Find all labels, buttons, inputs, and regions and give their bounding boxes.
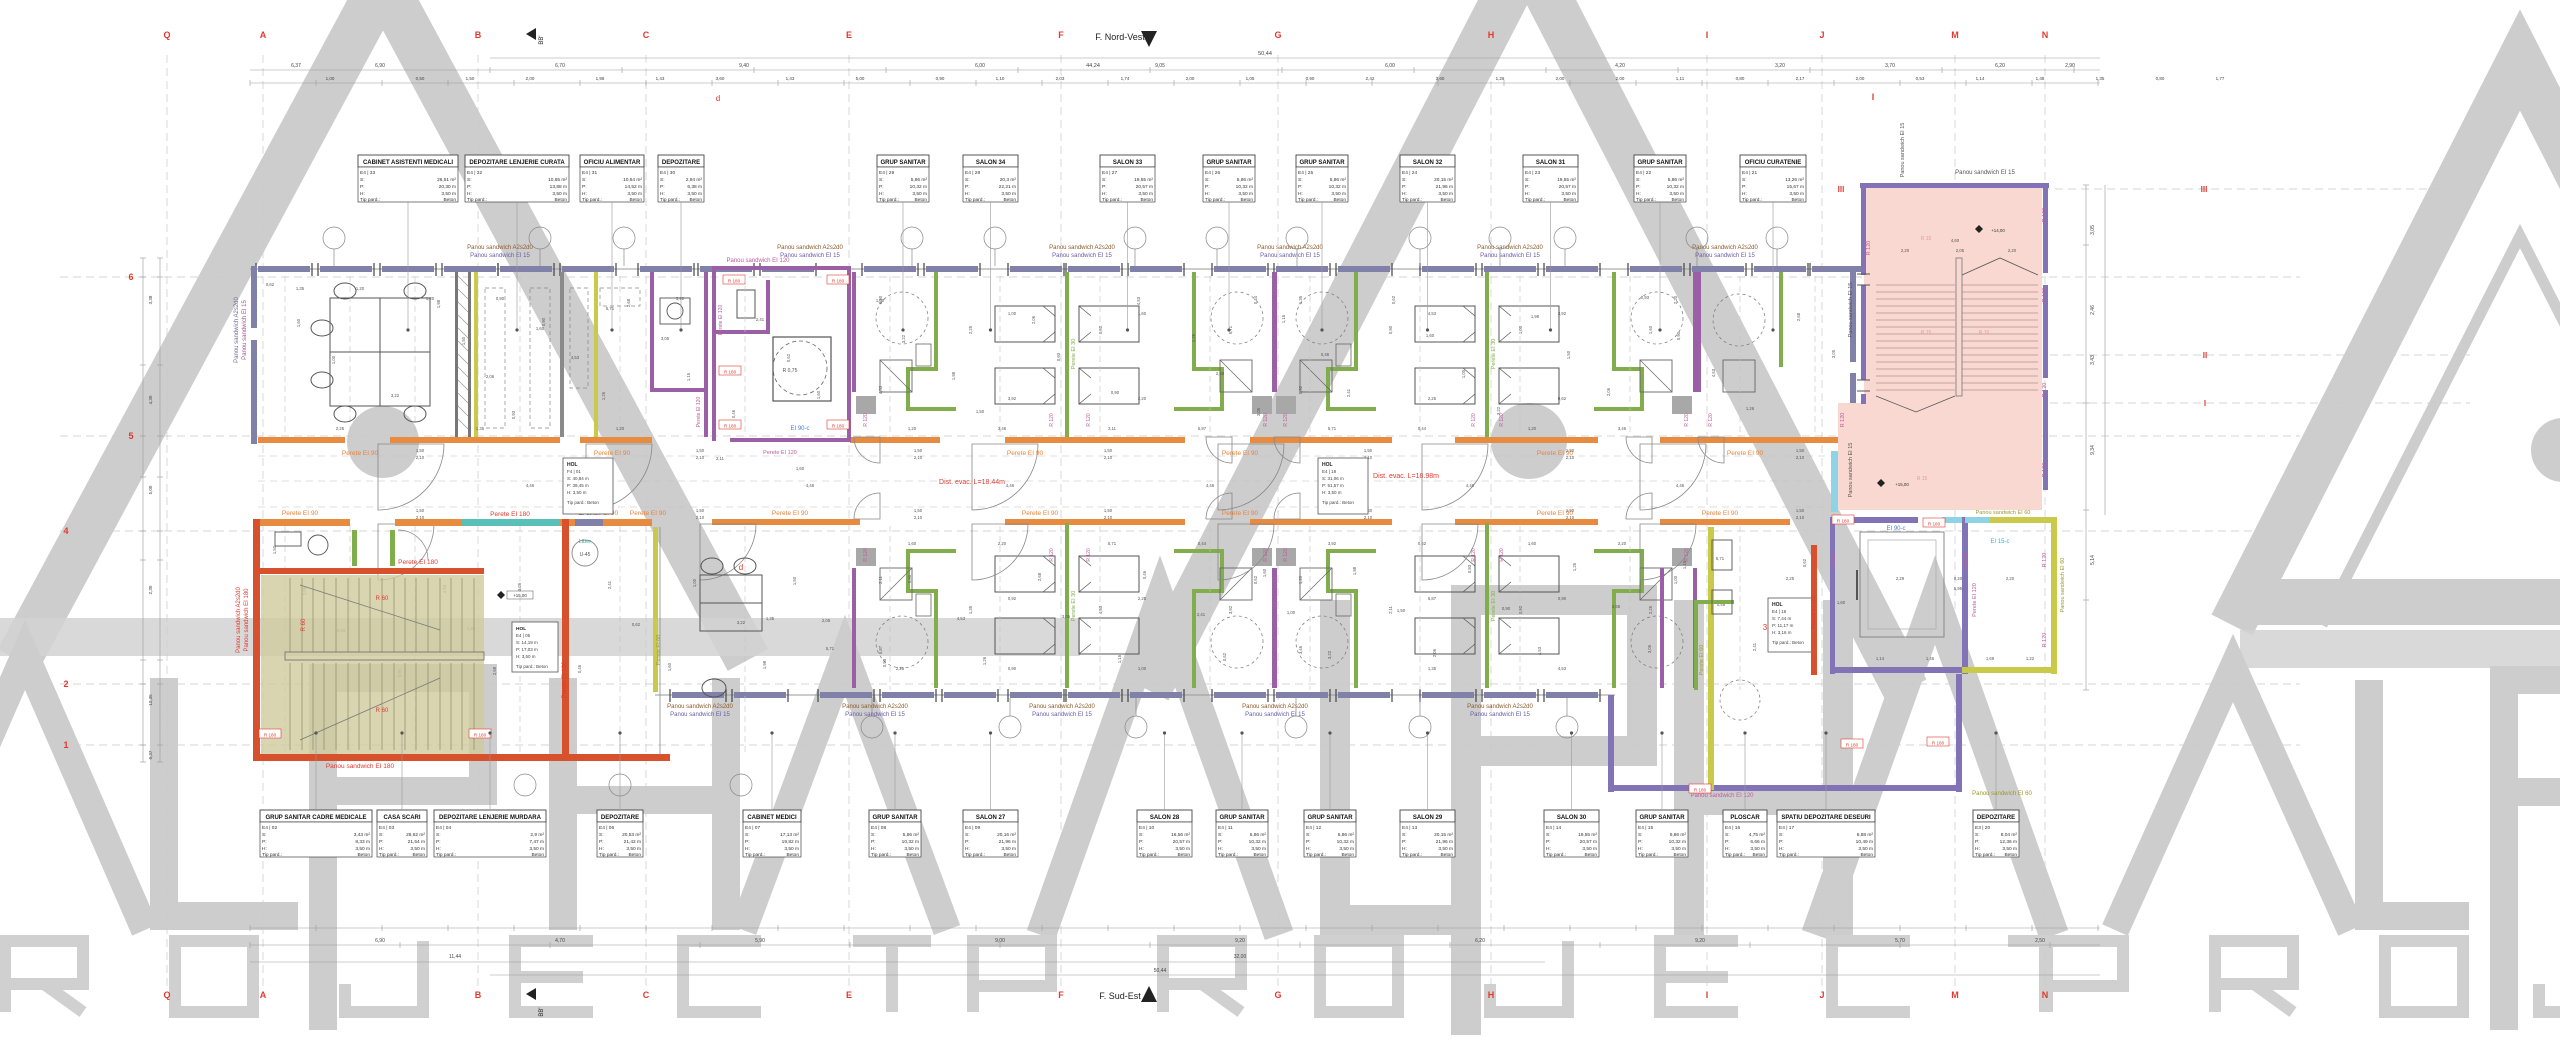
- svg-text:H:: H:: [599, 846, 604, 852]
- svg-text:S:: S:: [965, 832, 970, 838]
- svg-text:4,46: 4,46: [1206, 483, 1215, 488]
- svg-text:3,50 m: 3,50 m: [1339, 846, 1354, 852]
- svg-text:1,00: 1,00: [876, 298, 885, 303]
- svg-text:I: I: [2204, 399, 2206, 408]
- svg-text:0,90: 0,90: [496, 296, 505, 301]
- svg-text:E4 | 09: E4 | 09: [965, 825, 980, 831]
- svg-text:3,50 m: 3,50 m: [912, 191, 927, 197]
- svg-text:R 180: R 180: [474, 733, 487, 738]
- svg-text:H:: H:: [1975, 846, 1980, 852]
- svg-text:H: 3,50 m: H: 3,50 m: [516, 654, 536, 659]
- svg-text:HOL: HOL: [516, 626, 526, 632]
- svg-text:2: 2: [63, 679, 68, 689]
- svg-text:E4 | 23: E4 | 23: [1525, 170, 1540, 176]
- svg-text:G: G: [1274, 30, 1281, 40]
- svg-text:10,65 m²: 10,65 m²: [548, 177, 567, 183]
- svg-text:3,46: 3,46: [998, 426, 1007, 431]
- svg-text:R 120: R 120: [1049, 548, 1055, 562]
- svg-text:0,90: 0,90: [1008, 666, 1017, 671]
- svg-text:Panou sandwich EI 15: Panou sandwich EI 15: [1470, 712, 1530, 718]
- svg-text:P:: P:: [599, 839, 604, 845]
- svg-text:6,88 m²: 6,88 m²: [1857, 832, 1874, 838]
- svg-text:R 180: R 180: [724, 424, 737, 429]
- svg-text:21,96 m: 21,96 m: [1436, 839, 1453, 845]
- svg-text:H:: H:: [582, 191, 587, 197]
- svg-text:4,70: 4,70: [555, 938, 565, 944]
- svg-text:1,43: 1,43: [786, 76, 795, 81]
- svg-text:E4 | 14: E4 | 14: [1546, 825, 1561, 831]
- svg-text:4,53: 4,53: [1098, 605, 1103, 614]
- svg-text:4,53: 4,53: [1558, 666, 1567, 671]
- svg-text:Tip pard.:: Tip pard.:: [262, 852, 282, 858]
- svg-text:9,00: 9,00: [995, 938, 1005, 944]
- svg-text:DEPOZITARE: DEPOZITARE: [1977, 815, 2015, 821]
- svg-text:Perete EI 30: Perete EI 30: [1491, 591, 1497, 622]
- svg-text:1,50: 1,50: [1104, 508, 1113, 513]
- svg-text:R 60: R 60: [376, 708, 389, 714]
- svg-text:S:: S:: [965, 177, 970, 183]
- svg-text:11,44: 11,44: [449, 954, 461, 960]
- svg-text:Beton: Beton: [1177, 852, 1190, 858]
- svg-text:BB': BB': [539, 1007, 545, 1016]
- svg-text:2,68: 2,68: [1216, 371, 1225, 376]
- svg-text:Beton: Beton: [906, 852, 919, 858]
- svg-text:3,50 m: 3,50 m: [1001, 191, 1016, 197]
- svg-text:Panou sandwich EI 180: Panou sandwich EI 180: [326, 763, 395, 770]
- svg-text:P:: P:: [262, 839, 267, 845]
- svg-text:1,00: 1,00: [1461, 369, 1466, 378]
- svg-text:H:: H:: [745, 846, 750, 852]
- svg-text:0,46: 0,46: [1142, 570, 1147, 579]
- svg-text:EI 15-c: EI 15-c: [1990, 539, 2009, 545]
- svg-text:1,14: 1,14: [1876, 656, 1885, 661]
- svg-text:GRUP SANITAR: GRUP SANITAR: [1206, 160, 1252, 166]
- svg-text:1,60: 1,60: [296, 318, 301, 327]
- svg-text:B: B: [475, 30, 482, 40]
- svg-text:SALON 31: SALON 31: [1536, 160, 1566, 166]
- svg-text:H: 3,50 m: H: 3,50 m: [567, 490, 587, 495]
- svg-text:4,46: 4,46: [526, 483, 535, 488]
- svg-text:I: I: [1706, 990, 1709, 1000]
- svg-text:0,92: 0,92: [1298, 385, 1303, 394]
- svg-text:Perete EI 90: Perete EI 90: [630, 510, 667, 517]
- svg-text:2,25: 2,25: [1138, 596, 1147, 601]
- svg-text:P:: P:: [1402, 184, 1407, 190]
- svg-text:0,62: 0,62: [1391, 295, 1396, 304]
- svg-text:2,25: 2,25: [1428, 396, 1437, 401]
- svg-text:1,00: 1,00: [331, 355, 336, 364]
- svg-text:2,41: 2,41: [1346, 388, 1351, 397]
- svg-text:E4 | 31: E4 | 31: [582, 170, 597, 176]
- svg-text:9,20: 9,20: [1235, 938, 1245, 944]
- svg-text:H:: H:: [1306, 846, 1311, 852]
- svg-text:H:: H:: [1102, 191, 1107, 197]
- svg-text:1,98: 1,98: [596, 76, 605, 81]
- svg-text:2,68: 2,68: [1796, 312, 1801, 321]
- svg-text:10,32 m: 10,32 m: [1667, 184, 1684, 190]
- svg-text:R 120: R 120: [1086, 413, 1092, 427]
- svg-text:SALON 30: SALON 30: [1557, 815, 1587, 821]
- svg-text:1,77: 1,77: [2216, 76, 2225, 81]
- svg-text:Tip pard.:: Tip pard.:: [379, 852, 399, 858]
- svg-text:3,50 m: 3,50 m: [1789, 191, 1804, 197]
- svg-text:2,00: 2,00: [526, 76, 535, 81]
- svg-text:EI 90-c: EI 90-c: [1886, 526, 1905, 532]
- svg-text:I: I: [1872, 92, 1875, 102]
- svg-text:R 180: R 180: [832, 424, 845, 429]
- svg-text:H:: H:: [1205, 191, 1210, 197]
- svg-text:H:: H:: [1402, 846, 1407, 852]
- svg-text:Beton: Beton: [1240, 197, 1253, 203]
- svg-text:3,50 m: 3,50 m: [1238, 191, 1253, 197]
- svg-text:3,50 m: 3,50 m: [1561, 191, 1576, 197]
- svg-text:2,11: 2,11: [878, 575, 883, 584]
- svg-text:F: F: [1058, 990, 1064, 1000]
- svg-text:6,00: 6,00: [975, 63, 985, 69]
- svg-text:1,50: 1,50: [272, 545, 277, 554]
- svg-text:R 120: R 120: [1831, 553, 1837, 568]
- svg-text:2,41: 2,41: [1197, 612, 1206, 617]
- svg-text:Panou sandwich A2s2d0: Panou sandwich A2s2d0: [1477, 245, 1543, 251]
- svg-text:Panou sandwich A2s2d0: Panou sandwich A2s2d0: [234, 296, 240, 362]
- svg-text:3,05: 3,05: [1831, 349, 1836, 358]
- svg-text:6: 6: [128, 272, 133, 282]
- svg-text:H:: H:: [379, 846, 384, 852]
- svg-text:E4 | 05: E4 | 05: [516, 633, 531, 638]
- svg-text:9,20: 9,20: [1695, 938, 1705, 944]
- svg-text:H:: H:: [360, 191, 365, 197]
- svg-text:H:: H:: [1298, 191, 1303, 197]
- svg-text:20,57 m: 20,57 m: [1173, 839, 1190, 845]
- svg-text:Panou sandwich A2s2d0: Panou sandwich A2s2d0: [1467, 704, 1533, 710]
- svg-text:R 180: R 180: [1932, 741, 1945, 746]
- svg-text:3,50 m: 3,50 m: [1175, 846, 1190, 852]
- svg-text:S:: S:: [360, 177, 365, 183]
- svg-text:10,32 m: 10,32 m: [902, 839, 919, 845]
- svg-text:Beton: Beton: [786, 852, 799, 858]
- svg-text:2,20: 2,20: [2006, 576, 2015, 581]
- svg-text:H: 3,16 m: H: 3,16 m: [1772, 630, 1792, 635]
- svg-text:3,38: 3,38: [148, 295, 153, 304]
- svg-text:3,05: 3,05: [2090, 225, 2096, 235]
- svg-text:2,20: 2,20: [1673, 295, 1678, 304]
- svg-text:3,60: 3,60: [716, 76, 725, 81]
- svg-text:9,40: 9,40: [739, 63, 749, 69]
- svg-text:BB': BB': [539, 35, 545, 44]
- svg-text:H:: H:: [1546, 846, 1551, 852]
- svg-text:R 120: R 120: [1471, 413, 1477, 427]
- svg-text:R 120: R 120: [1263, 413, 1269, 427]
- svg-text:0,93: 0,93: [882, 658, 887, 667]
- svg-text:2,41: 2,41: [1752, 642, 1757, 651]
- svg-text:R 60: R 60: [376, 596, 389, 602]
- svg-text:E4 | 11: E4 | 11: [1218, 825, 1233, 831]
- svg-text:Tip pard.:: Tip pard.:: [660, 197, 680, 203]
- svg-text:S:: S:: [1546, 832, 1551, 838]
- svg-text:1,50: 1,50: [696, 508, 705, 513]
- svg-text:2,68: 2,68: [1037, 572, 1042, 581]
- svg-text:+15,00: +15,00: [513, 593, 527, 598]
- svg-text:20,53 m²: 20,53 m²: [622, 832, 641, 838]
- svg-text:R 120: R 120: [1283, 413, 1289, 427]
- svg-text:N: N: [2042, 990, 2049, 1000]
- svg-text:Perete EI 90: Perete EI 90: [1022, 510, 1059, 517]
- svg-text:1,26: 1,26: [601, 391, 606, 400]
- svg-text:2,10: 2,10: [1566, 515, 1575, 520]
- svg-text:S:: S:: [599, 832, 604, 838]
- svg-text:R 0,75: R 0,75: [783, 368, 798, 374]
- svg-text:Beton: Beton: [1584, 852, 1597, 858]
- svg-text:4,53: 4,53: [1428, 311, 1437, 316]
- svg-text:2,06: 2,06: [1031, 315, 1036, 324]
- svg-text:2,10: 2,10: [696, 455, 705, 460]
- svg-text:GRUP SANITAR: GRUP SANITAR: [1307, 815, 1353, 821]
- svg-text:P: 17,03 m: P: 17,03 m: [516, 647, 538, 652]
- svg-text:Perete EI 120: Perete EI 120: [696, 396, 702, 427]
- svg-text:Q: Q: [163, 30, 170, 40]
- svg-text:R 180: R 180: [1928, 522, 1941, 527]
- svg-text:CABINET MEDICI: CABINET MEDICI: [747, 815, 797, 821]
- svg-text:1,20: 1,20: [908, 426, 917, 431]
- svg-text:S:: S:: [1218, 832, 1223, 838]
- svg-text:Tip pard.:: Tip pard.:: [360, 197, 380, 203]
- svg-text:5,87: 5,87: [1198, 426, 1207, 431]
- svg-text:6,70: 6,70: [555, 63, 565, 69]
- svg-text:1,60: 1,60: [1138, 311, 1147, 316]
- svg-text:19,55 m²: 19,55 m²: [1578, 832, 1597, 838]
- svg-text:S: 7,44 m: S: 7,44 m: [1772, 616, 1792, 621]
- svg-text:R 15: R 15: [1917, 476, 1928, 482]
- svg-text:1,00: 1,00: [1287, 610, 1296, 615]
- svg-text:3,50 m: 3,50 m: [2002, 846, 2017, 852]
- svg-text:Tip pard.:: Tip pard.:: [871, 852, 891, 858]
- svg-text:S:: S:: [1779, 832, 1784, 838]
- svg-text:1,50: 1,50: [1566, 508, 1575, 513]
- svg-text:3,92: 3,92: [676, 296, 685, 301]
- svg-text:Tip pard.: Beton: Tip pard.: Beton: [1772, 640, 1804, 645]
- svg-text:1,00: 1,00: [1673, 575, 1678, 584]
- svg-text:S:: S:: [262, 832, 267, 838]
- svg-text:E4 | 25: E4 | 25: [1298, 170, 1313, 176]
- svg-text:6,37: 6,37: [291, 63, 301, 69]
- svg-text:0,46: 0,46: [731, 409, 736, 418]
- svg-text:2,20: 2,20: [998, 541, 1007, 546]
- svg-text:GRUP SANITAR: GRUP SANITAR: [1299, 160, 1345, 166]
- svg-text:1,15: 1,15: [686, 372, 691, 381]
- svg-text:GRUP SANITAR: GRUP SANITAR: [880, 160, 926, 166]
- svg-text:2,10: 2,10: [914, 515, 923, 520]
- svg-text:Tip pard.: Beton: Tip pard.: Beton: [1322, 500, 1354, 505]
- svg-text:1,50: 1,50: [976, 409, 985, 414]
- svg-text:H:: H:: [436, 846, 441, 852]
- svg-text:0,80: 0,80: [1736, 76, 1745, 81]
- svg-text:1,15: 1,15: [1117, 654, 1122, 663]
- svg-text:2,17: 2,17: [1796, 76, 1805, 81]
- svg-text:3,92: 3,92: [1228, 605, 1233, 614]
- svg-text:2,11: 2,11: [1388, 605, 1393, 614]
- svg-text:Panou sandwich A2s2d0: Panou sandwich A2s2d0: [1029, 704, 1095, 710]
- svg-text:R 120: R 120: [1684, 413, 1690, 427]
- svg-text:E4 | 27: E4 | 27: [1102, 170, 1117, 176]
- svg-text:1,26: 1,26: [1496, 76, 1505, 81]
- svg-text:I: I: [1706, 30, 1709, 40]
- svg-text:R 180: R 180: [1846, 743, 1859, 748]
- svg-text:DEPOZITARE LENJERIE CURATA: DEPOZITARE LENJERIE CURATA: [469, 160, 565, 166]
- svg-text:3,50 m: 3,50 m: [552, 191, 567, 197]
- svg-text:1,14: 1,14: [1976, 76, 1985, 81]
- svg-text:E4 | 07: E4 | 07: [745, 825, 760, 831]
- svg-text:C: C: [643, 990, 650, 1000]
- svg-text:0,93: 0,93: [1467, 564, 1472, 573]
- svg-text:2,06: 2,06: [1606, 387, 1611, 396]
- svg-text:1,50: 1,50: [1566, 350, 1571, 359]
- svg-text:P:: P:: [871, 839, 876, 845]
- svg-text:2,46: 2,46: [2090, 305, 2096, 315]
- svg-text:21,96 m: 21,96 m: [1436, 184, 1453, 190]
- svg-text:1,60: 1,60: [667, 662, 672, 671]
- svg-text:10,32 m: 10,32 m: [1249, 839, 1266, 845]
- svg-text:2,06: 2,06: [486, 374, 495, 379]
- svg-text:II: II: [2203, 351, 2207, 360]
- svg-text:1,50: 1,50: [1566, 448, 1575, 453]
- svg-text:Panou sandwich EI 60: Panou sandwich EI 60: [1976, 510, 2031, 516]
- svg-text:0,93: 0,93: [1641, 295, 1650, 300]
- svg-text:H:: H:: [1638, 846, 1643, 852]
- svg-text:1,20: 1,20: [1298, 575, 1303, 584]
- svg-text:2,9 m²: 2,9 m²: [530, 832, 544, 838]
- svg-text:Tip pard.:: Tip pard.:: [965, 852, 985, 858]
- svg-text:1,98: 1,98: [1352, 566, 1357, 575]
- svg-text:S: 31,06 m: S: 31,06 m: [1322, 476, 1344, 481]
- svg-text:1,35: 1,35: [766, 616, 775, 621]
- svg-text:1,60: 1,60: [796, 466, 805, 471]
- svg-text:2,00: 2,00: [1186, 76, 1195, 81]
- svg-text:1,05: 1,05: [1246, 76, 1255, 81]
- svg-text:S:: S:: [1742, 177, 1747, 183]
- svg-text:5,86 m²: 5,86 m²: [1670, 832, 1687, 838]
- svg-text:U-45: U-45: [580, 552, 591, 558]
- svg-text:3,60: 3,60: [1436, 76, 1445, 81]
- svg-text:R 120: R 120: [2042, 553, 2048, 568]
- svg-text:5,86 m²: 5,86 m²: [911, 177, 928, 183]
- svg-text:Beton: Beton: [1440, 197, 1453, 203]
- svg-text:R 120: R 120: [1866, 241, 1872, 256]
- svg-text:+15,00: +15,00: [1895, 482, 1909, 487]
- svg-text:Panou sandwich EI 15: Panou sandwich EI 15: [670, 712, 730, 718]
- svg-text:1,00: 1,00: [1138, 666, 1147, 671]
- svg-text:2,03: 2,03: [1056, 76, 1065, 81]
- svg-text:III: III: [1838, 185, 1845, 194]
- svg-text:DEPOZITARE LENJERIE MURDARA: DEPOZITARE LENJERIE MURDARA: [439, 815, 542, 821]
- svg-text:2,50: 2,50: [2035, 938, 2045, 944]
- svg-text:0,90: 0,90: [1558, 596, 1567, 601]
- svg-text:1,60: 1,60: [1648, 325, 1653, 334]
- svg-text:3,50 m: 3,50 m: [1331, 191, 1346, 197]
- svg-text:Beton: Beton: [1140, 197, 1153, 203]
- svg-text:1,00: 1,00: [1518, 325, 1523, 334]
- svg-text:Perete EI 180: Perete EI 180: [398, 559, 438, 566]
- svg-text:Panou sandwich EI 15: Panou sandwich EI 15: [1245, 712, 1305, 718]
- svg-text:5,86 m²: 5,86 m²: [1668, 177, 1685, 183]
- svg-text:1,60: 1,60: [1262, 568, 1267, 577]
- svg-text:M: M: [1951, 30, 1959, 40]
- svg-text:2,00: 2,00: [1556, 76, 1565, 81]
- svg-text:P:: P:: [1779, 839, 1784, 845]
- svg-text:1,20: 1,20: [1528, 426, 1537, 431]
- svg-text:1,98: 1,98: [951, 371, 956, 380]
- svg-text:2,29: 2,29: [1896, 576, 1905, 581]
- svg-text:5,87: 5,87: [1428, 596, 1437, 601]
- svg-text:Dist. evac. L=18.98m: Dist. evac. L=18.98m: [1373, 473, 1439, 480]
- svg-text:1,50: 1,50: [416, 448, 425, 453]
- svg-text:H:: H:: [1402, 191, 1407, 197]
- svg-text:Tip pard.:: Tip pard.:: [1742, 197, 1762, 203]
- svg-text:Panou sandwich A2s2d0: Panou sandwich A2s2d0: [842, 704, 908, 710]
- svg-text:6,90: 6,90: [375, 63, 385, 69]
- svg-text:2,00: 2,00: [1616, 76, 1625, 81]
- svg-text:P:: P:: [1725, 839, 1730, 845]
- svg-text:5,86 m²: 5,86 m²: [903, 832, 920, 838]
- svg-text:2,41: 2,41: [607, 580, 612, 589]
- svg-text:Panou sandwich A2s2d0: Panou sandwich A2s2d0: [467, 245, 533, 251]
- svg-text:S:: S:: [1402, 832, 1407, 838]
- svg-text:P: 51,57 m: P: 51,57 m: [1322, 483, 1344, 488]
- svg-text:5: 5: [128, 431, 133, 441]
- svg-text:1,50: 1,50: [1796, 508, 1805, 513]
- svg-text:4,53: 4,53: [878, 385, 883, 394]
- svg-text:20,16 m²: 20,16 m²: [997, 832, 1016, 838]
- svg-text:4,30: 4,30: [148, 395, 153, 404]
- svg-text:2,11: 2,11: [1108, 426, 1117, 431]
- svg-text:HOL: HOL: [1322, 462, 1333, 468]
- svg-text:1,26: 1,26: [1191, 333, 1196, 342]
- svg-text:R 120: R 120: [2042, 208, 2048, 223]
- svg-text:HOL: HOL: [1772, 602, 1783, 608]
- svg-text:6,90: 6,90: [375, 938, 385, 944]
- svg-text:P:: P:: [467, 184, 472, 190]
- svg-text:6,00: 6,00: [1385, 63, 1395, 69]
- svg-text:2,05: 2,05: [1956, 248, 1965, 253]
- svg-text:3,50 m: 3,50 m: [1251, 846, 1266, 852]
- svg-text:1,00: 1,00: [326, 76, 335, 81]
- svg-text:Tip pard.:: Tip pard.:: [1525, 197, 1545, 203]
- svg-text:E4 | 30: E4 | 30: [660, 170, 675, 176]
- svg-text:S:: S:: [1306, 832, 1311, 838]
- svg-text:5,14: 5,14: [2090, 555, 2096, 565]
- svg-text:P:: P:: [1102, 184, 1107, 190]
- svg-text:44,24: 44,24: [1086, 63, 1100, 69]
- svg-text:0,53: 0,53: [1916, 76, 1925, 81]
- svg-text:2,10: 2,10: [696, 515, 705, 520]
- svg-text:E4 | 26: E4 | 26: [1205, 170, 1220, 176]
- svg-text:12,35: 12,35: [148, 694, 153, 706]
- svg-text:S:: S:: [582, 177, 587, 183]
- svg-text:10,32 m: 10,32 m: [1337, 839, 1354, 845]
- svg-text:H:: H:: [965, 191, 970, 197]
- svg-text:SALON 27: SALON 27: [976, 815, 1006, 821]
- svg-text:Panou sandwich A2s2d0: Panou sandwich A2s2d0: [1242, 704, 1308, 710]
- svg-text:S:: S:: [1402, 177, 1407, 183]
- svg-text:1,35: 1,35: [1428, 666, 1437, 671]
- svg-text:OFICIU CURATENIE: OFICIU CURATENIE: [1745, 160, 1802, 166]
- svg-text:12,36 m: 12,36 m: [2000, 839, 2017, 845]
- svg-text:Panou sandwich EI 180: Panou sandwich EI 180: [244, 588, 250, 652]
- svg-text:3,43 m²: 3,43 m²: [354, 832, 371, 838]
- svg-text:1,26: 1,26: [1746, 406, 1755, 411]
- svg-text:3,22: 3,22: [1327, 650, 1332, 659]
- svg-text:0,62: 0,62: [786, 353, 791, 362]
- svg-text:1,20: 1,20: [356, 286, 365, 291]
